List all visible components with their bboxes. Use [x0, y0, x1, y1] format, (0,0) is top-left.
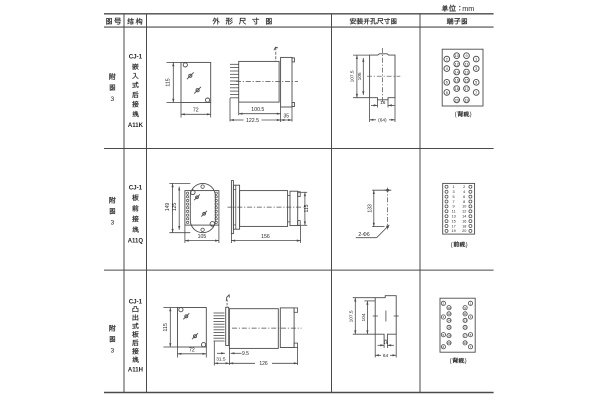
svg-text:12: 12 [462, 210, 466, 214]
svg-text:(64): (64) [378, 118, 387, 124]
svg-text:125: 125 [172, 203, 178, 212]
svg-text:5: 5 [470, 333, 472, 337]
svg-text:13: 13 [451, 215, 455, 219]
svg-text:6: 6 [443, 333, 445, 337]
svg-text:2: 2 [446, 58, 448, 62]
svg-text:1: 1 [475, 58, 477, 62]
svg-text:3: 3 [111, 96, 115, 103]
svg-text:10: 10 [455, 54, 459, 58]
svg-text:16: 16 [455, 79, 459, 83]
svg-text:19: 19 [464, 98, 468, 102]
svg-text:20: 20 [462, 229, 466, 233]
svg-text:7: 7 [475, 91, 477, 95]
svg-text:8: 8 [446, 91, 448, 95]
svg-text:3: 3 [470, 315, 472, 319]
svg-text:156: 156 [261, 234, 270, 240]
svg-text:17: 17 [464, 87, 468, 91]
svg-text:3: 3 [475, 67, 477, 71]
svg-text:2: 2 [443, 301, 445, 305]
svg-text:17: 17 [451, 224, 455, 228]
svg-text:104: 104 [361, 313, 367, 321]
svg-text:9: 9 [453, 205, 455, 209]
svg-text:9: 9 [464, 306, 466, 310]
svg-text:105: 105 [357, 72, 363, 80]
svg-text:A11K: A11K [128, 123, 144, 129]
svg-text:(: ( [451, 242, 453, 248]
svg-text:3: 3 [453, 190, 455, 194]
svg-text:72: 72 [193, 108, 199, 114]
svg-text:17: 17 [463, 334, 467, 338]
svg-text:100.5: 100.5 [251, 107, 264, 113]
svg-text:115: 115 [166, 78, 172, 86]
svg-text:10: 10 [462, 205, 466, 209]
svg-text:4: 4 [446, 67, 448, 71]
svg-text:16: 16 [462, 219, 466, 223]
svg-text:12: 12 [455, 62, 459, 66]
svg-text:14: 14 [447, 319, 451, 323]
svg-text:5: 5 [453, 195, 455, 199]
svg-text:4: 4 [443, 315, 445, 319]
svg-text:7: 7 [470, 345, 472, 349]
svg-text:107.5: 107.5 [349, 70, 355, 82]
svg-text:9: 9 [465, 54, 467, 58]
svg-text:64: 64 [383, 353, 389, 359]
svg-text:15: 15 [464, 79, 468, 83]
svg-text:133: 133 [367, 204, 373, 213]
svg-text:mm: mm [462, 4, 474, 13]
svg-text:16: 16 [447, 326, 451, 330]
svg-text:A11H: A11H [128, 367, 143, 373]
svg-text:): ) [465, 359, 467, 365]
svg-text:CJ-1: CJ-1 [129, 298, 143, 305]
svg-text:9.5: 9.5 [242, 351, 249, 357]
svg-text:126: 126 [259, 361, 268, 367]
svg-text:35: 35 [284, 114, 290, 120]
svg-text:1: 1 [470, 301, 472, 305]
svg-text:6: 6 [463, 195, 465, 199]
svg-text:2-Φ6: 2-Φ6 [358, 232, 369, 238]
svg-text:18: 18 [462, 224, 466, 228]
svg-text:2: 2 [463, 185, 465, 189]
svg-text:8: 8 [463, 200, 465, 204]
svg-text:115: 115 [163, 323, 169, 331]
svg-text:CJ-1: CJ-1 [129, 185, 143, 192]
svg-text:107.5: 107.5 [348, 310, 354, 322]
svg-text:149: 149 [165, 203, 171, 212]
svg-text:5: 5 [475, 81, 477, 85]
svg-text:3: 3 [111, 348, 115, 355]
svg-text:A11Q: A11Q [128, 239, 144, 245]
svg-text:15: 15 [463, 326, 467, 330]
svg-text:19: 19 [451, 229, 455, 233]
svg-text:11: 11 [465, 62, 469, 66]
svg-text:7: 7 [453, 200, 455, 204]
svg-text:10: 10 [447, 306, 451, 310]
svg-text:4: 4 [463, 190, 465, 194]
svg-text:1: 1 [453, 185, 455, 189]
svg-text:16: 16 [383, 340, 388, 345]
svg-text:): ) [470, 112, 472, 118]
svg-text:8: 8 [443, 345, 445, 349]
svg-text:15: 15 [451, 219, 455, 223]
svg-text:12: 12 [447, 312, 451, 316]
svg-text:6: 6 [446, 81, 448, 85]
svg-text:11: 11 [452, 210, 456, 214]
svg-text:13: 13 [463, 319, 467, 323]
svg-text:CJ-1: CJ-1 [129, 54, 143, 61]
svg-text:18: 18 [447, 334, 451, 338]
svg-text:19: 19 [463, 341, 467, 345]
svg-text:14: 14 [455, 70, 459, 74]
svg-text:115: 115 [304, 204, 310, 212]
svg-text:20: 20 [455, 98, 459, 102]
svg-text:105: 105 [198, 234, 207, 240]
svg-text:20: 20 [447, 341, 451, 345]
svg-text:18: 18 [455, 87, 459, 91]
svg-text:13: 13 [464, 70, 468, 74]
svg-text:14: 14 [462, 215, 466, 219]
svg-text:11: 11 [463, 312, 466, 316]
svg-text:(: ( [450, 359, 452, 365]
svg-text:16: 16 [380, 100, 386, 106]
svg-text:31.5: 31.5 [216, 356, 226, 362]
svg-text:): ) [466, 242, 468, 248]
svg-text:72: 72 [189, 347, 195, 353]
svg-text:(: ( [455, 112, 457, 118]
svg-text:3: 3 [111, 220, 115, 227]
svg-text:122.5: 122.5 [246, 118, 259, 124]
